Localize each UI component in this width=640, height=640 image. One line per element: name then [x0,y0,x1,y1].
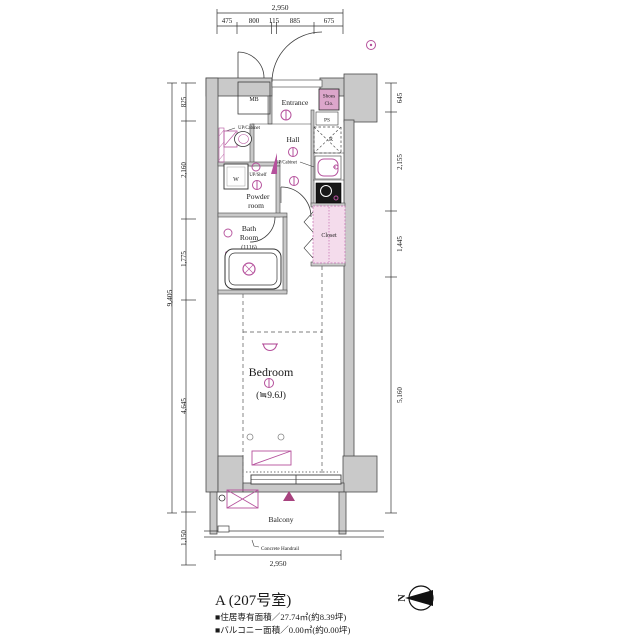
dim-chain-top: 2,950 475 800 115 885 675 [217,3,343,34]
shoes-closet-label-2: Clo. [325,101,334,107]
powder-room-label-1: Powder [247,192,270,201]
right-service-column: Shoes Clo. PS R [314,89,341,203]
bath-room-label-2: Room [240,233,259,242]
up-shelf-label: UP/Shelf [249,173,267,178]
dim-top-seg-4: 885 [290,17,301,25]
dim-top-seg-2: 800 [249,17,260,25]
dim-chain-bottom: 2,950 [215,550,341,568]
concrete-handrail: Concrete Handrail [204,526,384,552]
dim-left-seg-1: 825 [180,96,188,107]
floorplan-drawing: 2,950 475 800 115 885 675 9,405 825 2,16… [0,0,640,640]
ceiling-light-icon [281,110,291,120]
mb-door-arc [238,52,264,78]
dim-chain-right: 645 2,155 1,445 5,160 [385,83,404,513]
dim-chain-left: 9,405 825 2,160 1,775 4,645 1,150 [165,83,196,565]
area-living-label: ■住居専有面積／27.74㎡(約8.39坪) [215,611,346,622]
handrail-label: Concrete Handrail [261,546,300,552]
bathtub-icon [225,249,281,289]
dim-right-seg-4: 5,160 [396,387,404,403]
powder-room-label-2: room [248,201,264,210]
entrance-door-leaf [272,80,322,87]
shoes-closet-label-1: Shoes [323,94,335,100]
up-cabinet-toilet-label: UP/Cabinet [238,126,261,131]
north-arrow: N [397,586,433,610]
fridge-label: R [329,137,333,143]
dim-right-seg-3: 1,445 [396,236,404,252]
hall-door-arc [281,187,311,217]
drain-icon [219,495,225,501]
stove [316,183,341,203]
bath-room-label-1: Bath [242,224,256,233]
floorplan-page: 2,950 475 800 115 885 675 9,405 825 2,16… [0,0,640,640]
dim-left-seg-3: 1,775 [180,251,188,267]
unit-title: A (207号室) [215,592,291,609]
refrigerator-space: R [314,127,341,153]
hall-label: Hall [287,135,300,144]
ceiling-light-icon [290,177,299,186]
ps-label: PS [324,118,330,124]
bath-room: Bath Room (1116) [224,217,281,289]
dim-left-total: 9,405 [165,289,174,306]
closet: Closet [304,206,345,263]
dim-left-seg-2: 2,160 [180,162,188,178]
entrance-door-arc [272,32,322,82]
ceiling-light-icon [289,148,298,157]
outdoor-unit-icon [227,490,258,508]
balcony-label: Balcony [269,515,294,524]
dim-left-balcony: 1,150 [180,530,188,546]
north-label: N [397,594,408,602]
bedroom-size-label: (≒9.6J) [256,390,286,401]
mb-label: MB [249,97,258,103]
bifold-door-icon [304,238,313,258]
dim-bottom-total: 2,950 [270,559,287,568]
washer-label: W [233,177,239,183]
balcony: Balcony Concrete Handrail [204,490,384,552]
area-balcony-label: ■バルコニー面積／0.00㎡(約0.00坪) [215,624,350,635]
dim-right-seg-2: 2,155 [396,154,404,170]
toilet-door-hatch [219,128,224,162]
toilet-fixture-icon [224,131,252,147]
toilet-room: UP/Cabinet [219,126,261,162]
washing-machine-space: W [224,164,248,189]
dim-top-seg-5: 675 [324,17,335,25]
wall-light-icon [262,344,278,351]
dim-right-seg-1: 645 [396,92,404,103]
shower-icon [224,229,232,237]
outlet-icon [247,434,253,440]
outlet-icon [278,434,284,440]
window [251,475,341,484]
bifold-door-icon [304,212,313,232]
footer-block: A (207号室) ■住居専有面積／27.74㎡(約8.39坪) ■バルコニー面… [215,592,350,635]
bedroom-label: Bedroom [249,365,294,379]
dim-top-seg-1: 475 [222,17,233,25]
kitchen-sink [315,156,341,179]
air-conditioner-icon [252,451,291,465]
dim-left-seg-4: 4,645 [180,398,188,414]
entrance-label: Entrance [282,98,309,107]
ceiling-light-icon [265,379,274,388]
ceiling-light-icon [253,181,262,190]
dim-top-total: 2,950 [272,3,289,12]
up-cabinet-kitchen-label: UP/Cabinet [275,161,298,166]
closet-label: Closet [321,233,337,239]
balcony-access-marker [283,491,295,501]
bedroom: Bedroom (≒9.6J) [243,266,341,501]
dim-top-seg-3: 115 [269,17,280,25]
hall-area: Hall UP/Cabinet [275,135,314,217]
